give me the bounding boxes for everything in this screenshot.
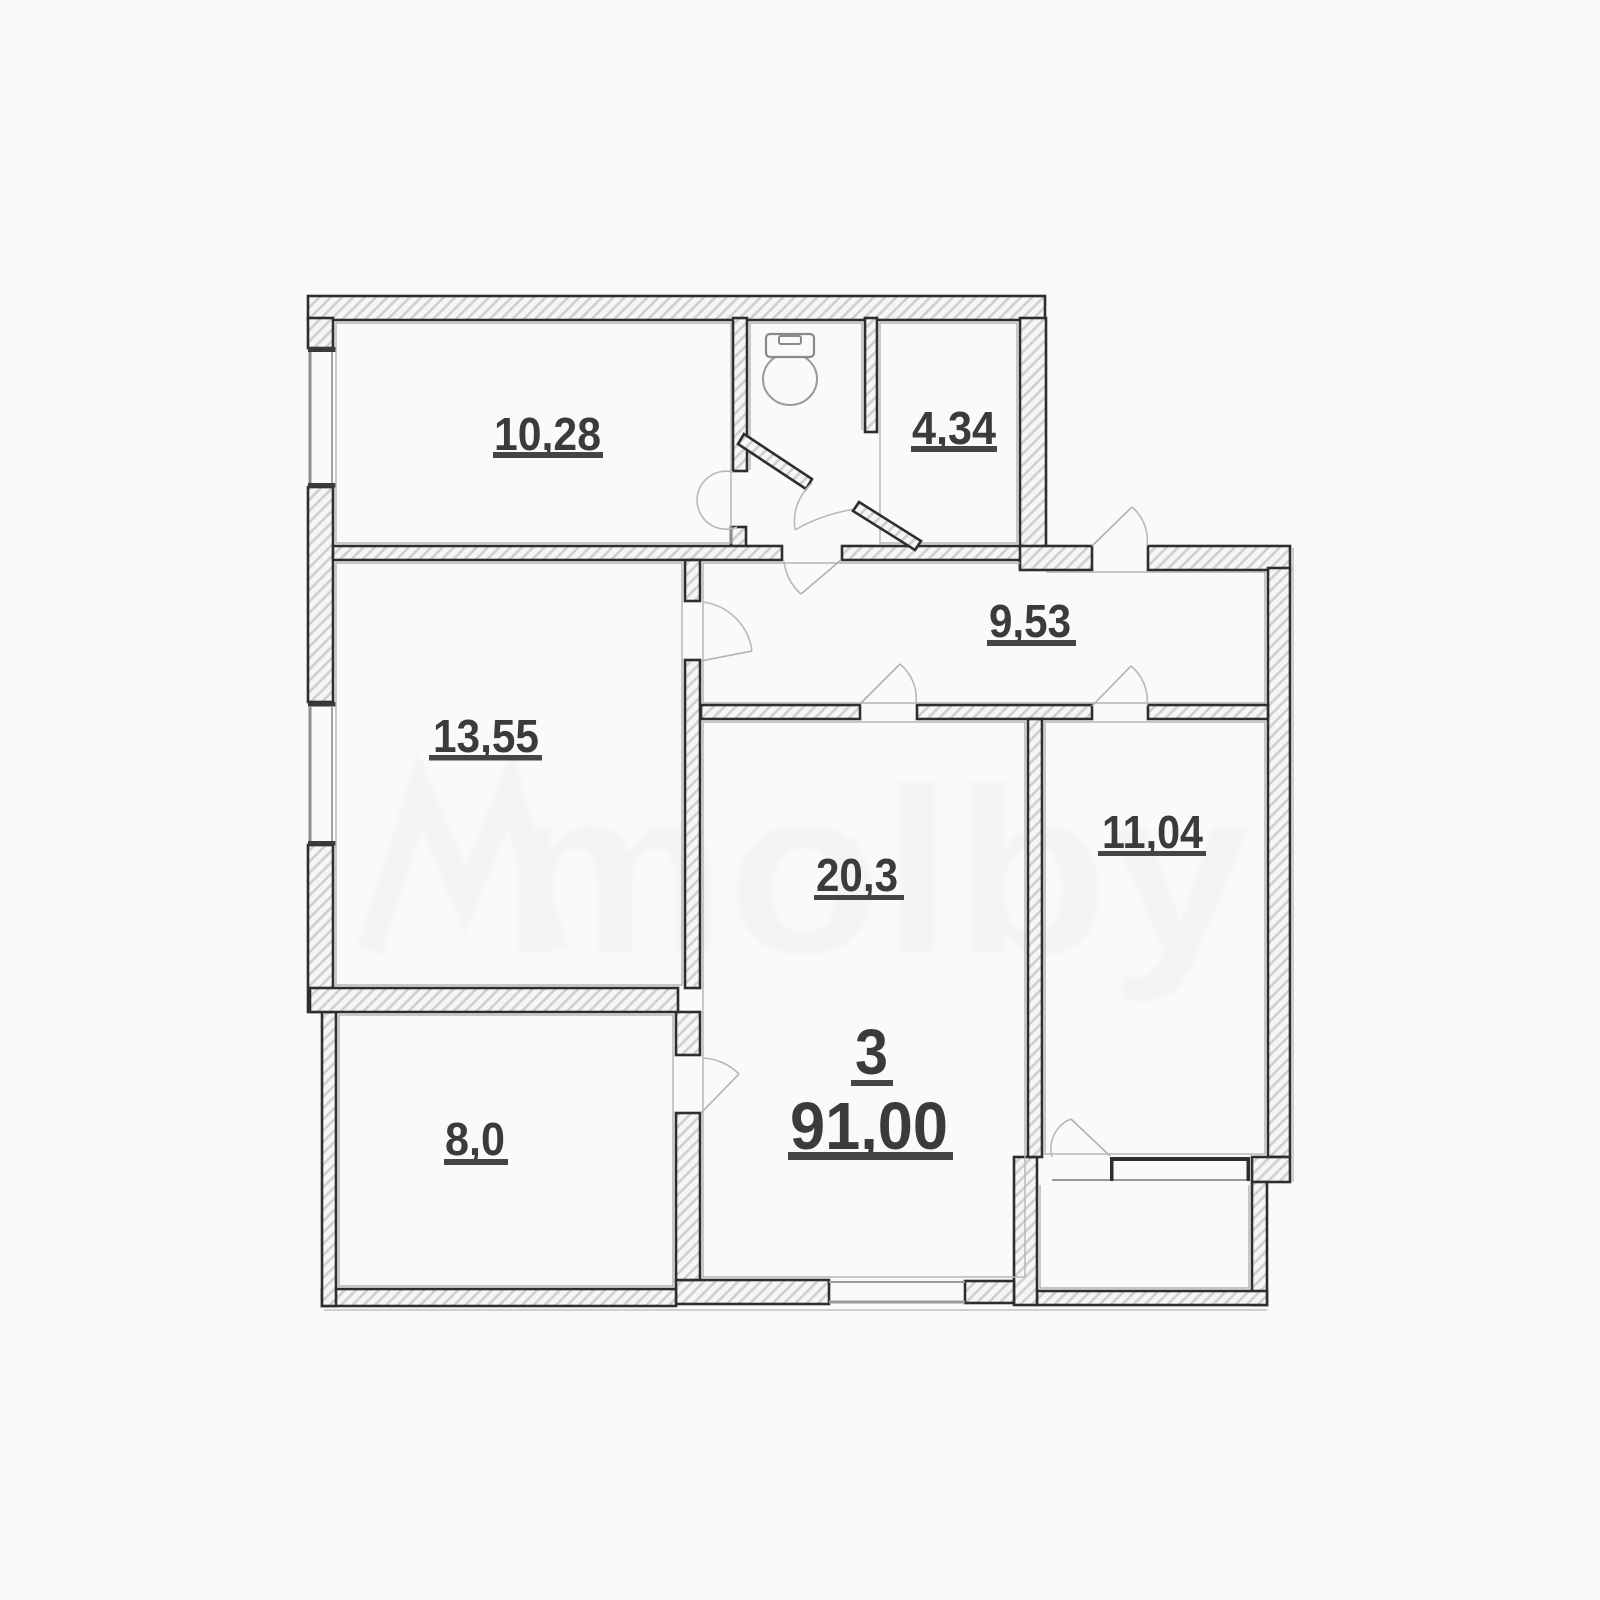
svg-text:11,04: 11,04: [1102, 806, 1203, 858]
svg-text:13,55: 13,55: [433, 710, 539, 762]
svg-text:3: 3: [855, 1016, 888, 1088]
svg-text:20,3: 20,3: [816, 849, 898, 901]
svg-text:8,0: 8,0: [445, 1113, 505, 1165]
svg-text:9,53: 9,53: [989, 595, 1071, 647]
